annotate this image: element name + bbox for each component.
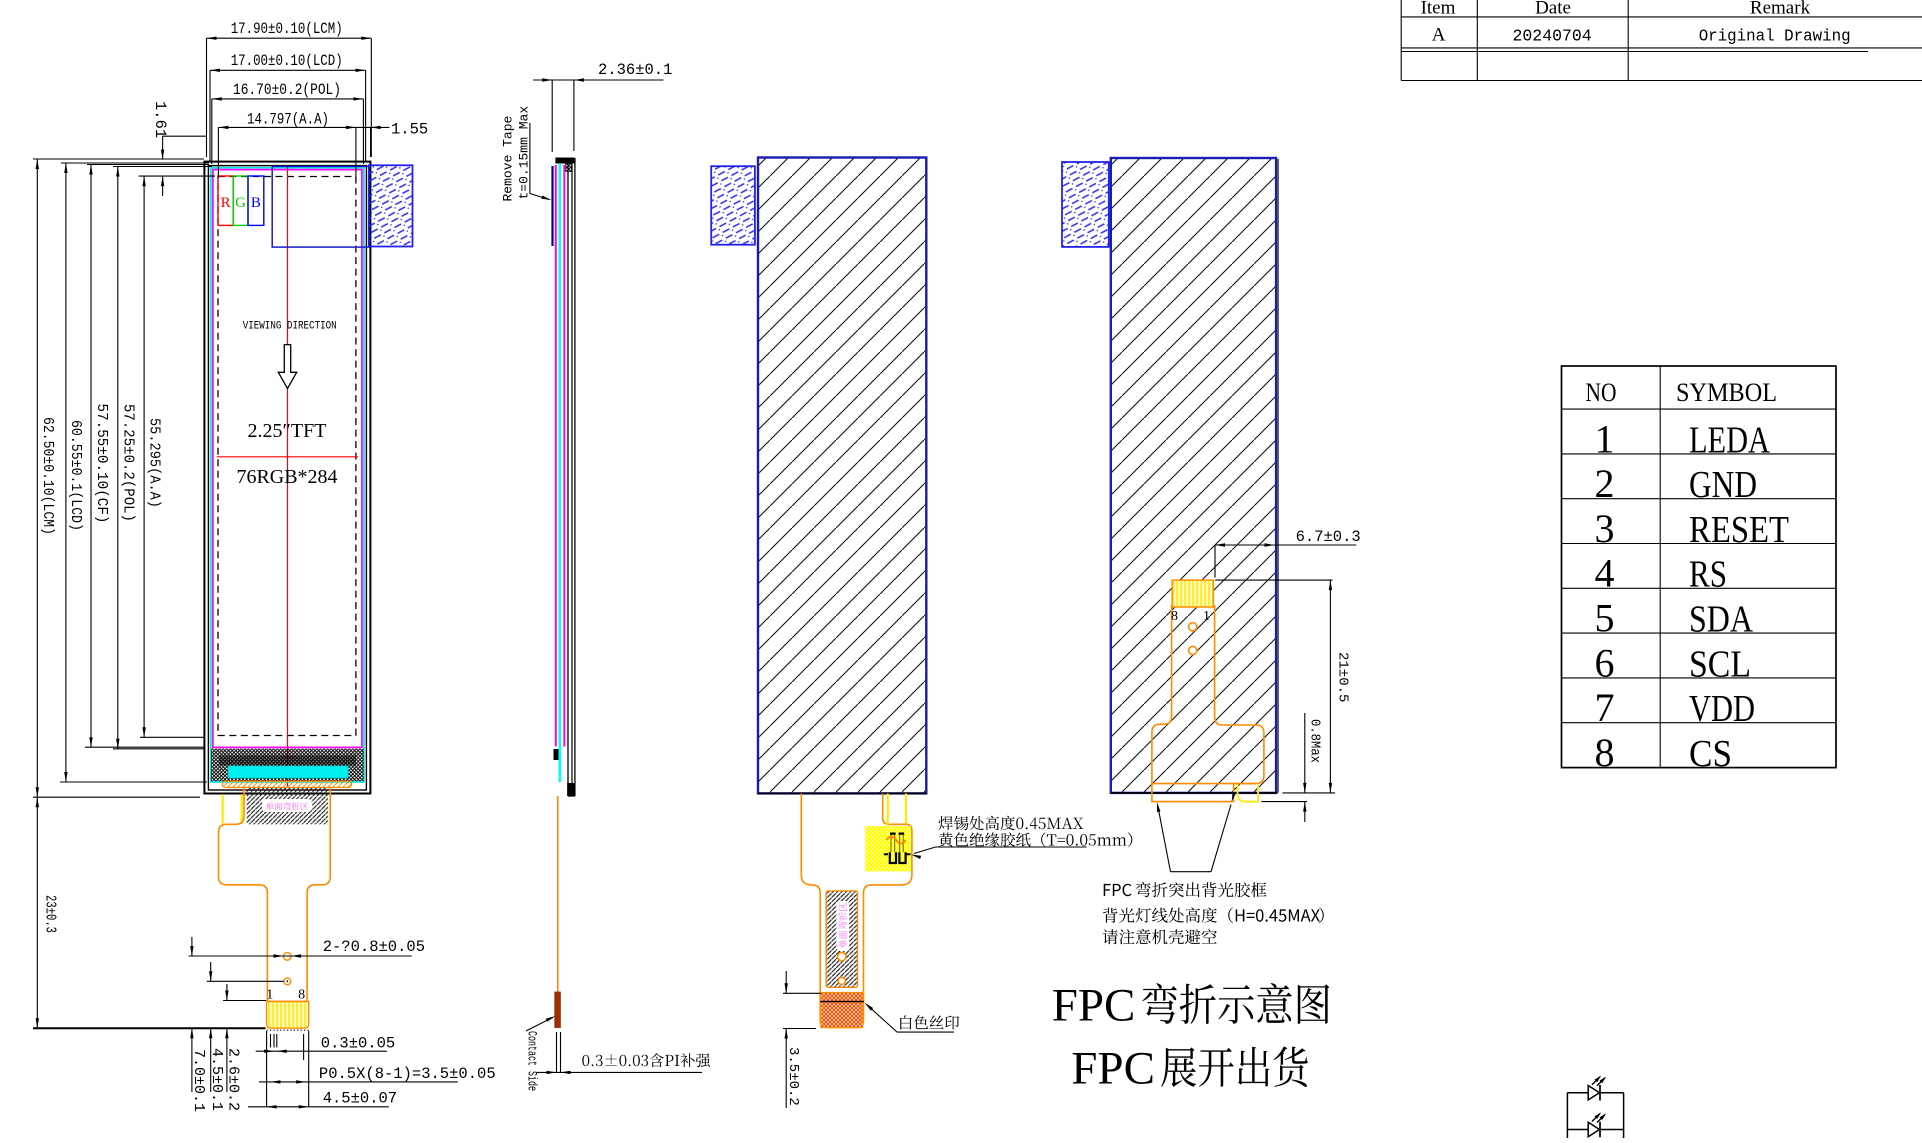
svg-text:62.50±0.10(LCM): 62.50±0.10(LCM) — [39, 417, 56, 535]
svg-text:1: 1 — [1203, 609, 1210, 624]
svg-text:57.55±0.10(CF): 57.55±0.10(CF) — [93, 404, 110, 524]
svg-text:2.6±0.2: 2.6±0.2 — [225, 1048, 242, 1111]
svg-text:SYMBOL: SYMBOL — [1676, 378, 1777, 407]
svg-text:1: 1 — [1595, 416, 1615, 461]
svg-text:3: 3 — [1595, 506, 1615, 551]
svg-text:NO: NO — [1586, 378, 1617, 407]
svg-text:17.00±0.10(LCD): 17.00±0.10(LCD) — [231, 52, 343, 70]
svg-text:14.797(A.A): 14.797(A.A) — [247, 111, 329, 129]
svg-text:B: B — [251, 195, 261, 211]
svg-text:2-?0.8±0.05: 2-?0.8±0.05 — [323, 938, 425, 956]
svg-text:G: G — [235, 195, 246, 211]
svg-text:7: 7 — [1595, 685, 1615, 730]
svg-text:1.55: 1.55 — [391, 121, 428, 139]
svg-text:RS: RS — [1689, 554, 1727, 596]
svg-text:LEDA: LEDA — [1689, 419, 1770, 461]
svg-text:A: A — [1432, 25, 1446, 46]
svg-text:0.3±0.05: 0.3±0.05 — [321, 1035, 395, 1053]
svg-text:Remark: Remark — [1750, 0, 1811, 19]
svg-text:8: 8 — [298, 988, 305, 1003]
svg-text:FPC: FPC — [1052, 980, 1136, 1032]
svg-text:SDA: SDA — [1689, 599, 1753, 641]
svg-text:7.0±0.1: 7.0±0.1 — [190, 1049, 207, 1112]
svg-text:4.5±0.1: 4.5±0.1 — [208, 1048, 225, 1111]
svg-text:2.25″TFT: 2.25″TFT — [248, 420, 327, 442]
svg-text:8: 8 — [1171, 609, 1178, 624]
svg-text:Date: Date — [1535, 0, 1571, 19]
svg-text:CS: CS — [1689, 733, 1732, 775]
svg-text:4: 4 — [1595, 551, 1615, 596]
svg-text:Remove Tape: Remove Tape — [501, 116, 516, 202]
svg-text:2.36±0.1: 2.36±0.1 — [598, 61, 672, 79]
svg-text:FPC: FPC — [1071, 1043, 1155, 1095]
svg-text:5: 5 — [1595, 596, 1615, 641]
svg-text:57.25±0.2(POL): 57.25±0.2(POL) — [120, 404, 137, 522]
svg-text:RESET: RESET — [1689, 509, 1789, 551]
svg-text:P0.5X(8-1)=3.5±0.05: P0.5X(8-1)=3.5±0.05 — [319, 1065, 496, 1083]
svg-text:3.5±0.2: 3.5±0.2 — [785, 1047, 801, 1106]
svg-text:1.61: 1.61 — [151, 101, 169, 138]
svg-text:Original Drawing: Original Drawing — [1699, 27, 1851, 46]
svg-text:0.8Max: 0.8Max — [1307, 719, 1322, 763]
svg-text:76RGB*284: 76RGB*284 — [236, 466, 337, 488]
svg-text:Item: Item — [1421, 0, 1456, 19]
svg-text:VIEWING DIRECTION: VIEWING DIRECTION — [243, 321, 337, 333]
svg-text:6: 6 — [1595, 640, 1615, 685]
svg-text:6.7±0.3: 6.7±0.3 — [1296, 528, 1361, 546]
svg-text:60.55±0.1(LCD): 60.55±0.1(LCD) — [67, 420, 84, 531]
svg-text:4.5±0.07: 4.5±0.07 — [323, 1090, 397, 1108]
svg-text:8: 8 — [1595, 730, 1615, 775]
svg-text:GND: GND — [1689, 464, 1757, 506]
svg-text:55.295(A.A): 55.295(A.A) — [146, 418, 163, 508]
svg-text:16.70±0.2(POL): 16.70±0.2(POL) — [233, 81, 341, 99]
svg-text:t=0.15mm Max: t=0.15mm Max — [517, 106, 532, 200]
svg-text:1: 1 — [266, 988, 273, 1003]
svg-text:Contact Side: Contact Side — [525, 1031, 540, 1091]
svg-text:23±0.3: 23±0.3 — [42, 895, 59, 933]
svg-text:17.90±0.10(LCM): 17.90±0.10(LCM) — [231, 20, 343, 38]
svg-text:21±0.5: 21±0.5 — [1335, 652, 1351, 702]
svg-text:2: 2 — [1595, 461, 1615, 506]
svg-text:R: R — [221, 195, 231, 211]
svg-text:20240704: 20240704 — [1513, 27, 1592, 46]
svg-text:VDD: VDD — [1689, 688, 1755, 730]
svg-text:SCL: SCL — [1689, 643, 1751, 685]
